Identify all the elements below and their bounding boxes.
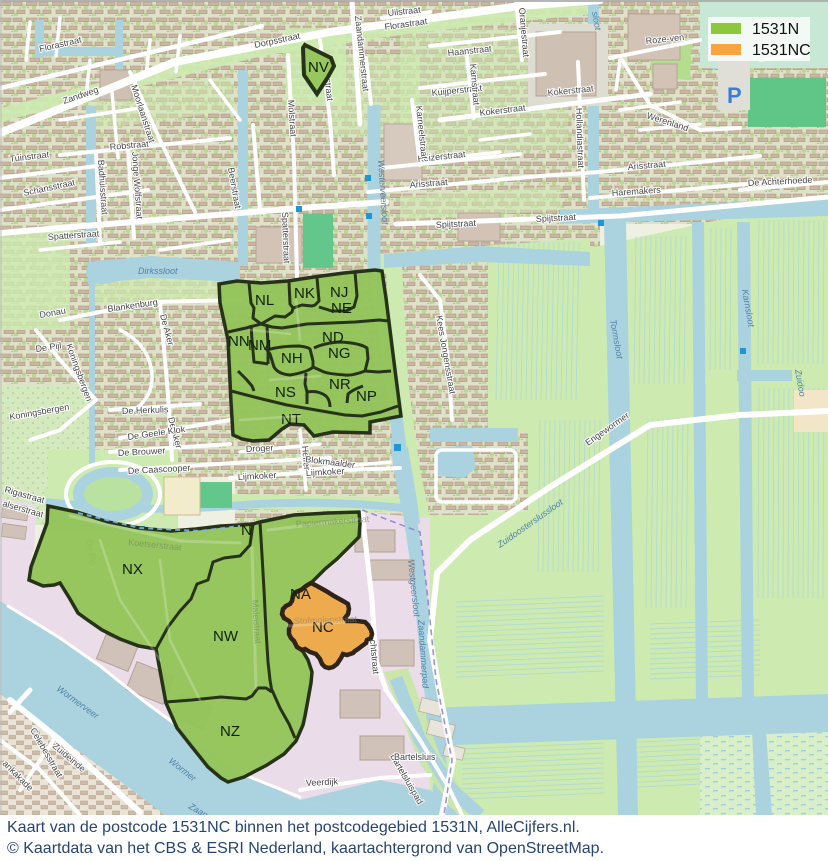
svg-text:© Kaartdata van het CBS & ESRI: © Kaartdata van het CBS & ESRI Nederland… [7,840,604,857]
svg-text:Hollandiastraat: Hollandiastraat [574,108,586,169]
svg-text:NK: NK [294,285,315,302]
svg-text:1531NC: 1531NC [752,42,811,59]
svg-text:NA: NA [290,586,311,603]
svg-text:ND: ND [322,329,344,346]
svg-text:Spijtstraat: Spijtstraat [536,212,577,224]
svg-text:NP: NP [356,388,377,405]
svg-text:Veerdijk: Veerdijk [306,776,339,788]
svg-text:NX: NX [122,561,143,578]
svg-text:De Herkulis: De Herkulis [122,404,169,416]
svg-text:NG: NG [328,345,351,362]
svg-text:NJ: NJ [330,284,348,301]
svg-text:NW: NW [213,628,239,645]
svg-text:NM: NM [248,337,271,354]
svg-text:Droger: Droger [246,443,274,454]
svg-text:NV: NV [308,59,329,76]
svg-text:Kaart van de postcode 1531NC b: Kaart van de postcode 1531NC binnen het … [7,819,580,836]
svg-text:NT: NT [281,411,301,428]
svg-text:Spijtstraat: Spijtstraat [436,218,477,230]
svg-text:Lijmkoker: Lijmkoker [238,470,277,482]
svg-text:Bartelsluis: Bartelsluis [394,752,436,762]
svg-text:NN: NN [228,333,250,350]
svg-text:NS: NS [275,384,296,401]
svg-text:1531N: 1531N [752,21,799,38]
svg-text:NH: NH [281,350,303,367]
svg-text:NE: NE [331,300,352,317]
svg-text:NZ: NZ [220,723,240,740]
svg-text:Dirkssloot: Dirkssloot [138,266,178,276]
svg-text:Spatterstraat: Spatterstraat [280,212,292,264]
svg-text:NL: NL [255,292,274,309]
svg-text:NR: NR [329,376,351,393]
svg-text:P: P [727,83,742,108]
svg-text:N: N [241,522,252,539]
